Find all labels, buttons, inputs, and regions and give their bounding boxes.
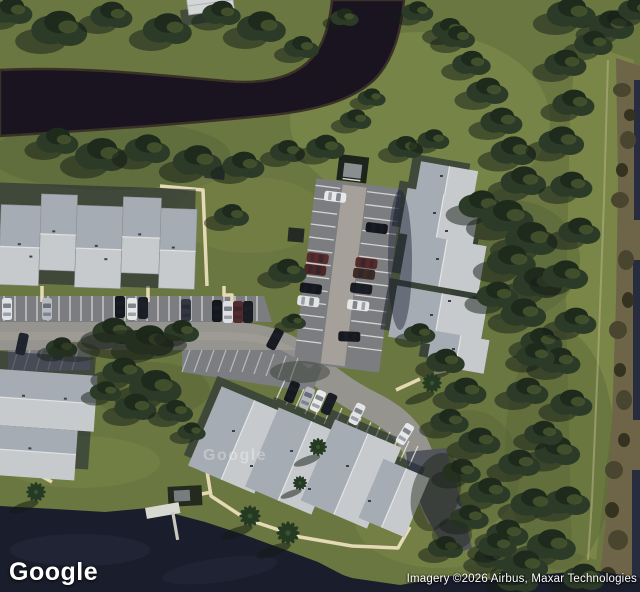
imagery-attribution: Imagery ©2026 Airbus, Maxar Technologies [407,573,637,585]
map-canvas[interactable]: Google Google Imagery ©2026 Airbus, Maxa… [0,0,640,592]
building-a [0,182,198,291]
google-logo[interactable]: Google [9,558,98,587]
satellite-imagery [0,0,640,592]
tile-watermark: Google [203,447,267,465]
dumpster-enclosure [336,154,369,183]
building-c [0,349,99,481]
utility-box [287,227,304,242]
